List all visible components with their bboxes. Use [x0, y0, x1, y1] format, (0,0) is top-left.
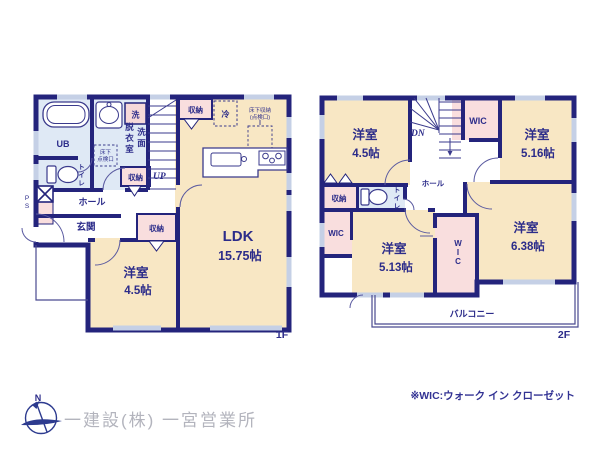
label-shuno-2f: 収納: [332, 193, 347, 203]
floorplan-2f: 洋室 4.5帖 DN WIC 洋室 5.16帖 収納 ト イ レ ホール WIC…: [310, 88, 590, 343]
label-2f-br-size: 6.38帖: [511, 239, 545, 253]
label-tenken-2: 点検口: [97, 155, 114, 163]
label-rei: 冷: [222, 109, 230, 119]
floorplan-1f: UB 洗 脱 衣 室 洗 面 床下 点検口 ト イ レ UP 収納 冷 床下収納…: [20, 88, 300, 343]
label-yoshitsu-1f-name: 洋室: [123, 265, 149, 280]
label-2f-bl-name: 洋室: [381, 241, 407, 256]
label-senmen-2: 面: [137, 138, 146, 148]
stairs-arrow: [448, 151, 453, 156]
compass-needle: [36, 402, 47, 432]
label-dn: DN: [410, 129, 426, 139]
label-toilet-2f-1: ト: [394, 186, 401, 194]
wic-legend-note: ※WIC:ウォーク イン クローゼット: [330, 388, 575, 403]
label-ps-2: S: [25, 203, 30, 210]
label-wic-top: WIC: [469, 116, 487, 126]
label-shuno-hall: 収納: [128, 172, 143, 182]
label-wic-mid-3: C: [455, 257, 461, 266]
pipe-shaft-box: [37, 186, 53, 202]
label-2f-tl-size: 4.5帖: [352, 146, 380, 160]
toilet-fixture-2f: [361, 189, 387, 205]
label-yoshitsu-1f-size: 4.5帖: [124, 283, 152, 297]
label-ldk-size: 15.75帖: [218, 248, 262, 263]
floor-label-1f: 1F: [276, 329, 289, 341]
toilet-fixture-1f: [47, 166, 78, 183]
label-yukashita-1: 床下収納: [249, 106, 272, 114]
label-toilet-1: ト: [78, 163, 85, 171]
compass-circle: [26, 403, 57, 434]
label-yukashita-2: (点検口): [250, 113, 270, 121]
label-wash: 洗: [132, 110, 140, 120]
label-ldk-name: LDK: [223, 228, 254, 245]
label-toilet-2f-2: イ: [394, 194, 401, 202]
label-toilet-2: イ: [78, 171, 85, 179]
label-shuno-stairs: 収納: [188, 105, 203, 115]
room-ldk: [175, 97, 289, 330]
label-2f-tr-size: 5.16帖: [521, 146, 555, 160]
bathtub: [43, 102, 89, 127]
label-wic-mid-2: I: [457, 248, 459, 257]
label-2f-tl-name: 洋室: [352, 127, 378, 142]
kitchen-sink: [211, 153, 241, 166]
label-up: UP: [153, 172, 166, 182]
compass-n: N: [35, 393, 42, 403]
compass: N: [18, 392, 66, 442]
label-hall-2f: ホール: [422, 179, 445, 188]
label-toilet-2f-3: レ: [394, 202, 401, 210]
label-tenken-1: 床下: [100, 148, 112, 156]
washbasin: [96, 102, 122, 128]
label-2f-tr-name: 洋室: [524, 127, 550, 142]
label-datsui-3: 室: [125, 144, 134, 154]
label-wic-mid-1: W: [454, 239, 462, 248]
label-2f-bl-size: 5.13帖: [379, 260, 413, 274]
label-ub: UB: [57, 139, 70, 149]
label-senmen-1: 洗: [137, 127, 146, 137]
label-genkan: 玄関: [76, 221, 95, 233]
label-shuno-genkan: 収納: [149, 223, 164, 233]
room-yoshitsu-1f: [90, 238, 178, 330]
label-hall-1f: ホール: [78, 197, 105, 207]
company-name: 一建設(株) 一宮営業所: [64, 406, 257, 431]
label-ps-1: P: [25, 195, 29, 202]
label-toilet-3: レ: [78, 179, 85, 187]
porch-strip: [38, 202, 53, 224]
label-datsui-1: 脱: [125, 122, 134, 132]
label-datsui-2: 衣: [125, 133, 134, 143]
label-wic-left: WIC: [328, 229, 344, 238]
floorplan-page: UB 洗 脱 衣 室 洗 面 床下 点検口 ト イ レ UP 収納 冷 床下収納…: [0, 0, 600, 450]
porch-outline: [36, 245, 88, 300]
floor-label-2f: 2F: [558, 329, 571, 341]
label-2f-br-name: 洋室: [513, 220, 539, 235]
label-balcony: バルコニー: [450, 309, 495, 319]
